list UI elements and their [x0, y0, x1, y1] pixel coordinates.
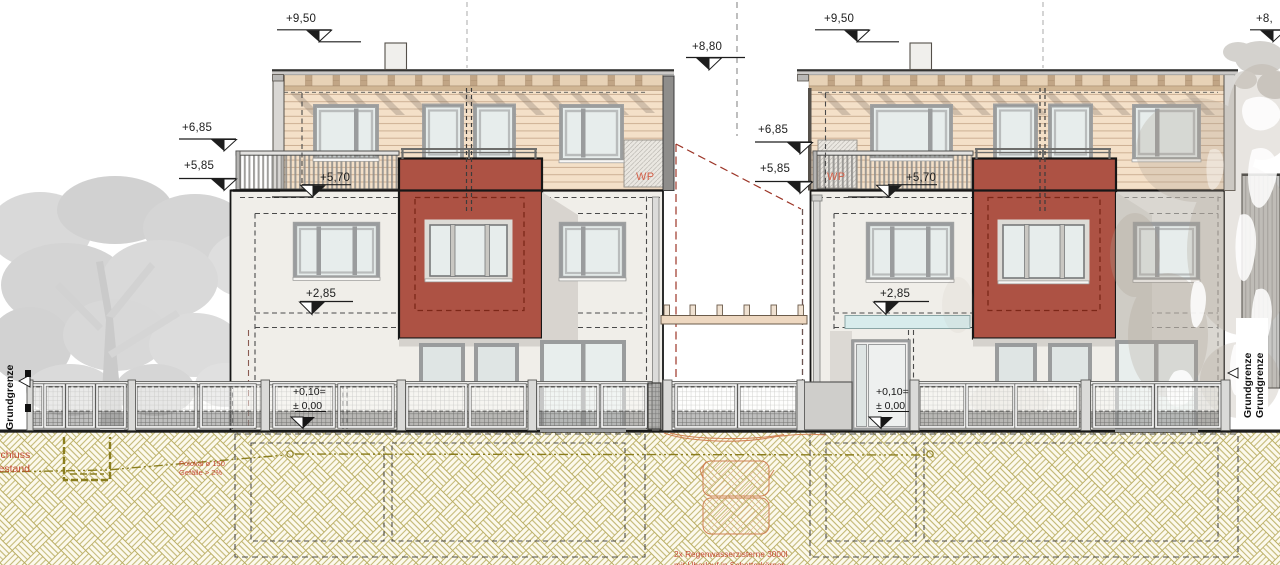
svg-text:+6,85: +6,85	[758, 124, 788, 136]
svg-text:WP: WP	[636, 171, 655, 183]
svg-text:+8,80: +8,80	[692, 41, 722, 53]
svg-text:+5,70: +5,70	[906, 172, 936, 184]
svg-text:WP: WP	[827, 171, 846, 183]
svg-text:Grundgrenze: Grundgrenze	[1254, 353, 1266, 418]
svg-text:+0,10=: +0,10=	[293, 386, 326, 398]
svg-text:Polokal ø 150: Polokal ø 150	[179, 459, 225, 468]
svg-text:+5,70: +5,70	[320, 172, 350, 184]
svg-text:Gefälle > 2%: Gefälle > 2%	[179, 468, 222, 477]
svg-text:2x Regenwasserzisterne 3000l: 2x Regenwasserzisterne 3000l	[674, 549, 788, 559]
svg-text:± 0,00: ± 0,00	[876, 400, 905, 412]
svg-text:+9,50: +9,50	[286, 13, 316, 25]
svg-text:+8,: +8,	[1256, 13, 1273, 25]
svg-text:± 0,00: ± 0,00	[293, 400, 322, 412]
svg-text:+5,85: +5,85	[184, 160, 214, 172]
svg-text:+5,85: +5,85	[760, 163, 790, 175]
svg-text:+9,50: +9,50	[824, 13, 854, 25]
svg-text:…chluss: …chluss	[0, 449, 30, 461]
svg-text:+2,85: +2,85	[880, 288, 910, 300]
svg-text:+2,85: +2,85	[306, 288, 336, 300]
svg-text:+0,10=: +0,10=	[876, 386, 909, 398]
svg-text:…estand: …estand	[0, 463, 30, 475]
svg-text:Grundgrenze: Grundgrenze	[1242, 353, 1254, 418]
svg-text:+6,85: +6,85	[182, 122, 212, 134]
svg-text:Grundgrenze: Grundgrenze	[4, 365, 16, 430]
svg-text:mit Überlauf in Schotterkörper: mit Überlauf in Schotterkörper	[674, 560, 784, 565]
